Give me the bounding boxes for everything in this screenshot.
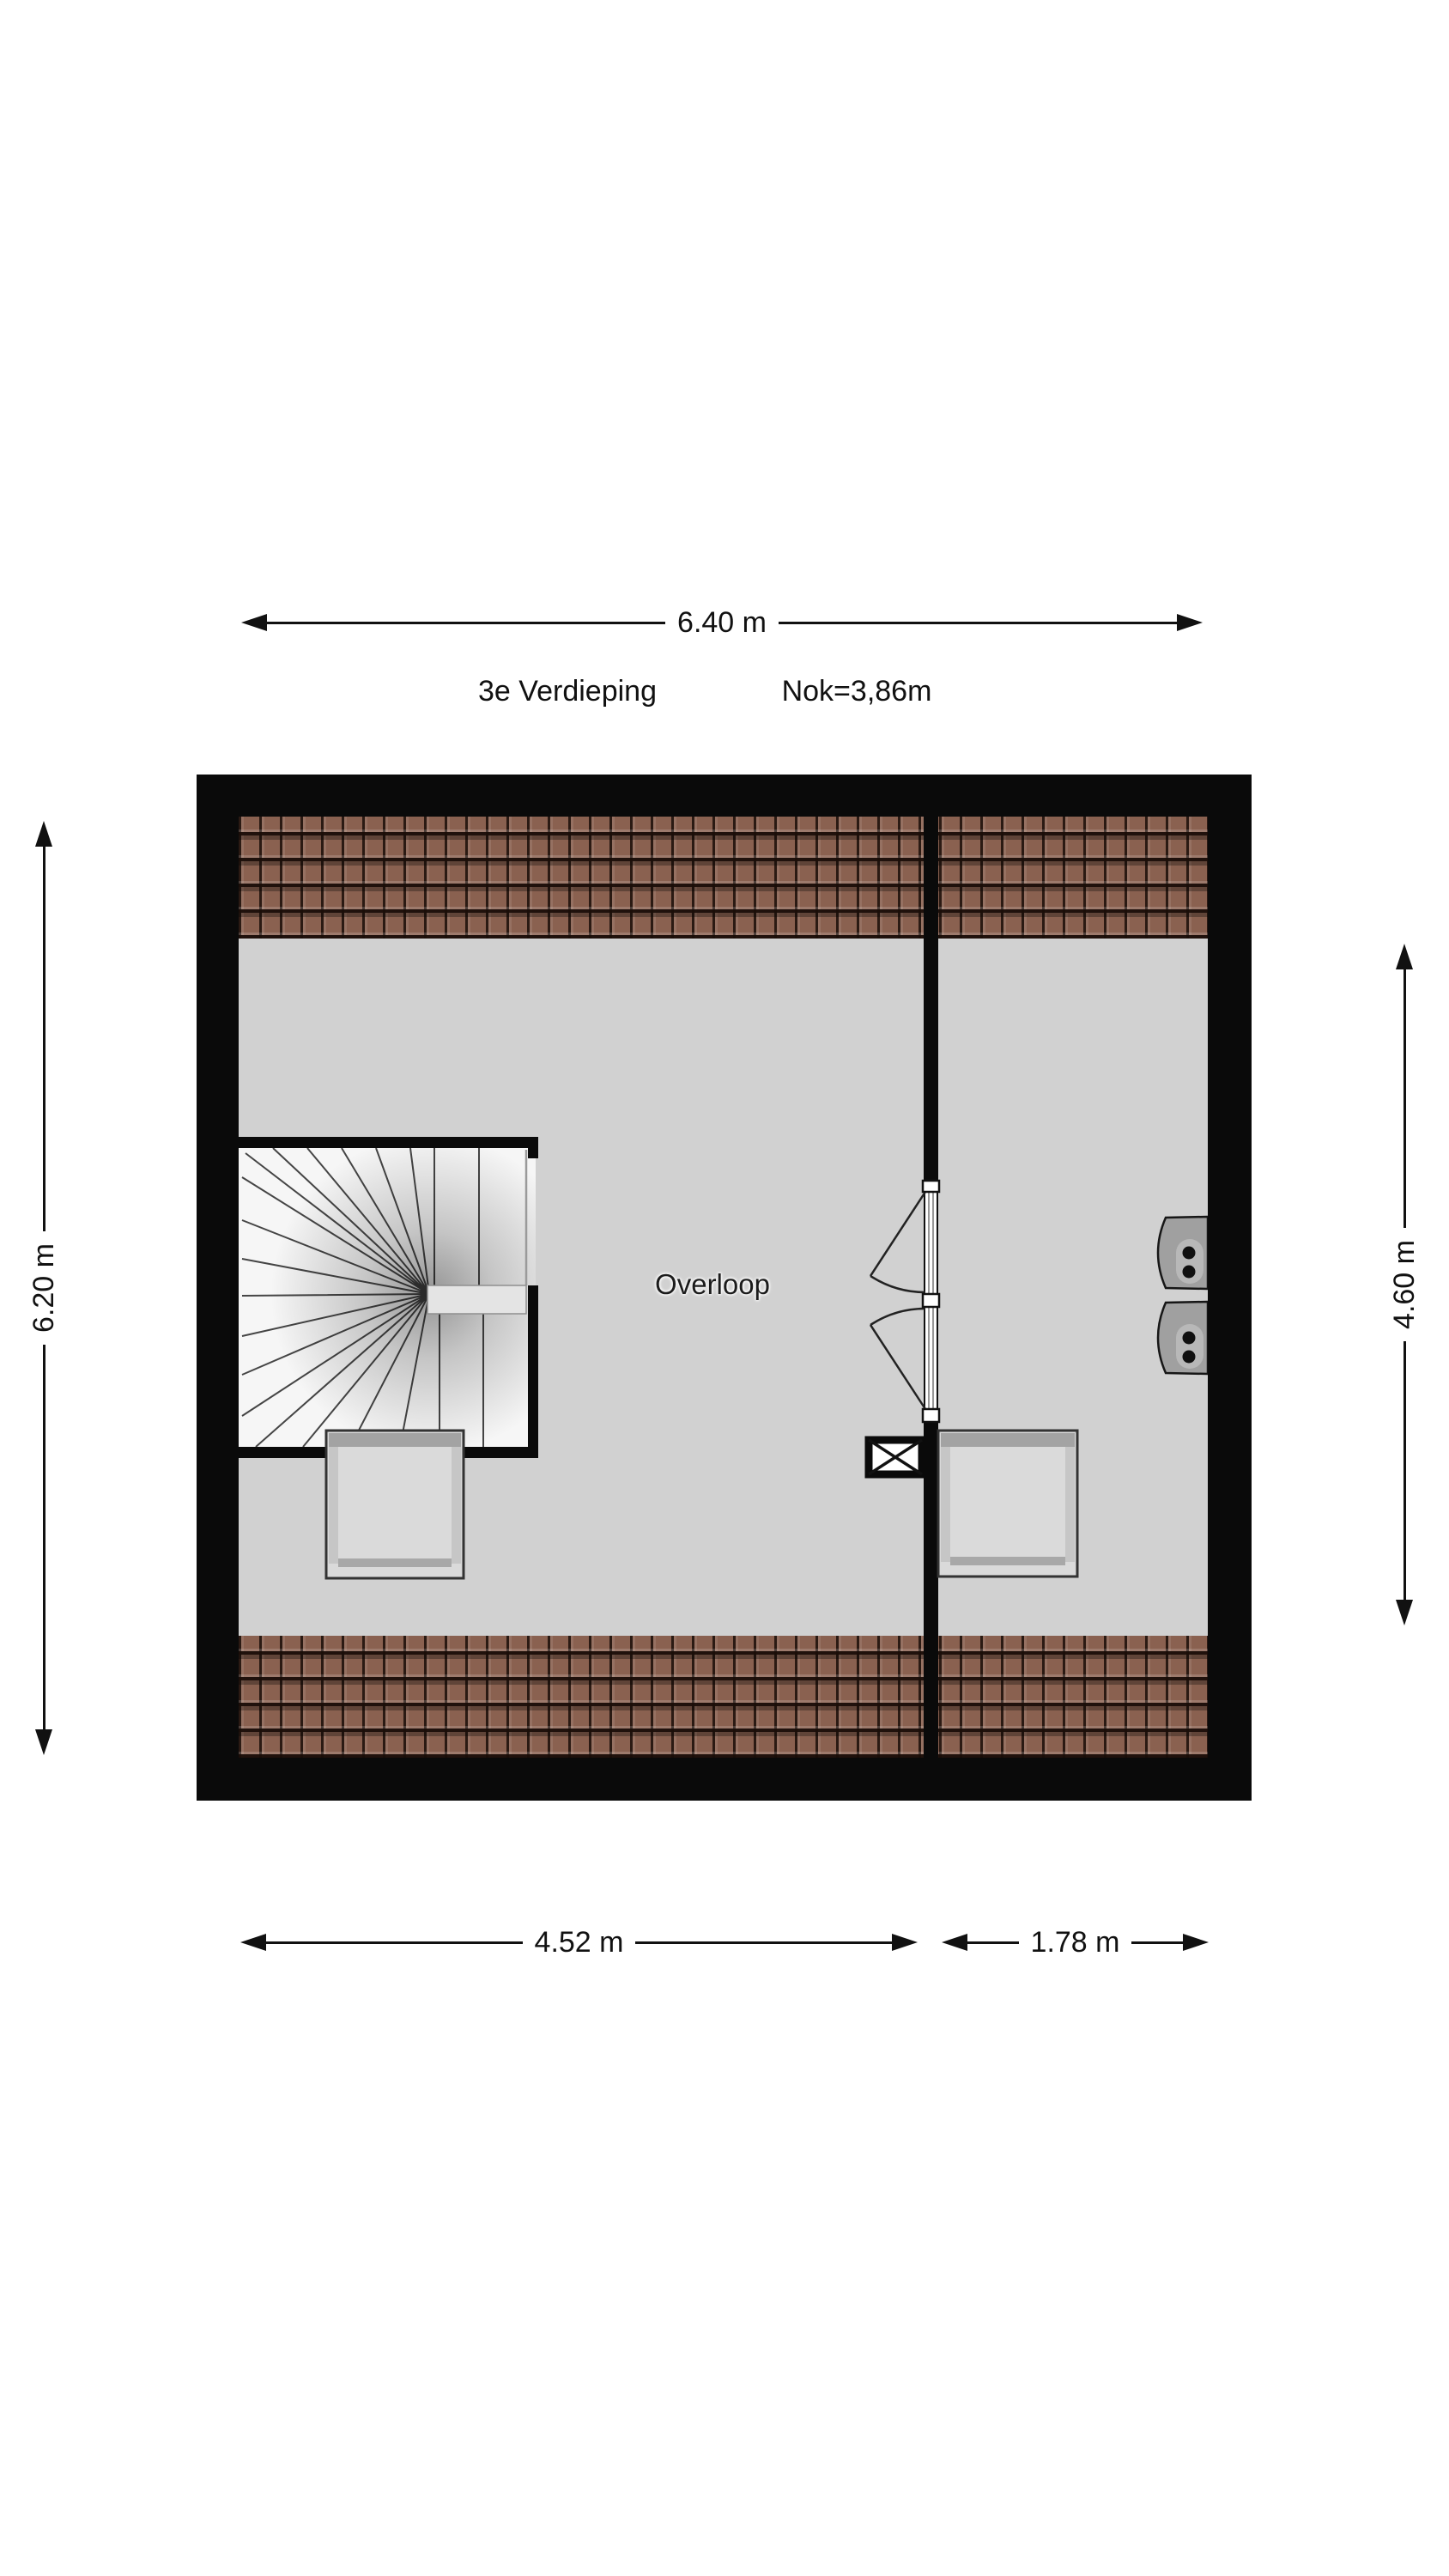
arrow-right-icon	[892, 1934, 918, 1951]
door-post-bottom	[923, 1409, 939, 1422]
door-swing-top	[870, 1276, 925, 1292]
floorplan: Overloop	[197, 775, 1252, 1801]
skylight-side-bevel	[452, 1447, 461, 1564]
stair-wall-top	[239, 1137, 538, 1148]
dimension-line	[43, 847, 45, 1231]
spiral-staircase	[239, 1137, 538, 1458]
dimension-line	[267, 622, 665, 624]
skylight-frame	[938, 1431, 1077, 1577]
room-label-overloop: Overloop	[655, 1268, 770, 1301]
skylight-left	[326, 1431, 464, 1578]
arrow-left-icon	[241, 614, 267, 631]
dimension-bottom-left: 4.52 m	[240, 1928, 918, 1957]
wall-segment-upper	[924, 817, 938, 1181]
arrow-down-icon	[35, 1729, 52, 1755]
floor-title: 3e Verdieping	[478, 677, 657, 706]
skylight-top-bevel	[941, 1433, 1075, 1447]
door-swing-bottom	[870, 1309, 925, 1325]
dimension-line	[43, 1345, 45, 1729]
appliance-knob-icon	[1183, 1266, 1196, 1279]
dimension-line	[1131, 1941, 1183, 1944]
skylight-top-bevel	[329, 1433, 461, 1447]
dimension-bottom-right-label: 1.78 m	[1019, 1928, 1132, 1957]
skylight-side-bevel	[329, 1447, 338, 1564]
skylight-side-bevel	[941, 1447, 950, 1562]
dimension-left-label: 6.20 m	[29, 1231, 58, 1345]
skylight-bottom-bevel	[338, 1558, 452, 1567]
arrow-up-icon	[1396, 944, 1413, 969]
door-frame-bottom	[925, 1307, 937, 1409]
skylight-bottom-bevel	[950, 1557, 1065, 1565]
door-post-top	[923, 1181, 939, 1192]
stair-wall-nib	[528, 1148, 538, 1158]
arrow-up-icon	[35, 821, 52, 847]
door-frame-top	[925, 1192, 937, 1294]
door-post-middle	[923, 1294, 939, 1307]
dimension-line	[967, 1941, 1019, 1944]
floor-area: Overloop	[239, 817, 1208, 1758]
arrow-down-icon	[1396, 1600, 1413, 1625]
ridge-height-label: Nok=3,86m	[782, 677, 932, 706]
dimension-right: 4.60 m	[1390, 944, 1419, 1625]
dimension-right-label: 4.60 m	[1390, 1228, 1419, 1341]
dimension-bottom-left-label: 4.52 m	[523, 1928, 636, 1957]
vent-box	[869, 1440, 922, 1474]
arrow-right-icon	[1177, 614, 1203, 631]
skylight-right	[938, 1431, 1077, 1577]
arrow-left-icon	[240, 1934, 266, 1951]
appliance-2	[1158, 1302, 1208, 1374]
stair-handrail	[427, 1285, 526, 1314]
appliance-knob-icon	[1183, 1247, 1196, 1260]
dimension-line	[1404, 969, 1406, 1228]
dimension-line	[266, 1941, 523, 1944]
skylight-side-bevel	[1065, 1447, 1075, 1562]
wall-segment-lower	[924, 1422, 938, 1758]
dimension-left: 6.20 m	[29, 821, 58, 1755]
dimension-bottom-right: 1.78 m	[942, 1928, 1209, 1957]
appliance-1	[1158, 1217, 1208, 1289]
appliance-knob-icon	[1183, 1351, 1196, 1364]
arrow-left-icon	[942, 1934, 967, 1951]
dimension-top: 6.40 m	[241, 608, 1203, 637]
appliance-knob-icon	[1183, 1332, 1196, 1345]
door-leaf-top	[870, 1192, 925, 1276]
dimension-line	[1404, 1341, 1406, 1600]
skylight-frame	[326, 1431, 464, 1578]
arrow-right-icon	[1183, 1934, 1209, 1951]
door-leaf-bottom	[870, 1325, 925, 1409]
dimension-line	[635, 1941, 892, 1944]
floorplan-canvas: 6.40 m 3e Verdieping Nok=3,86m 6.20 m 4.…	[0, 0, 1449, 2576]
dimension-line	[779, 622, 1177, 624]
stair-wall-right	[528, 1285, 538, 1458]
double-door	[870, 1181, 939, 1422]
dimension-top-label: 6.40 m	[665, 608, 779, 637]
